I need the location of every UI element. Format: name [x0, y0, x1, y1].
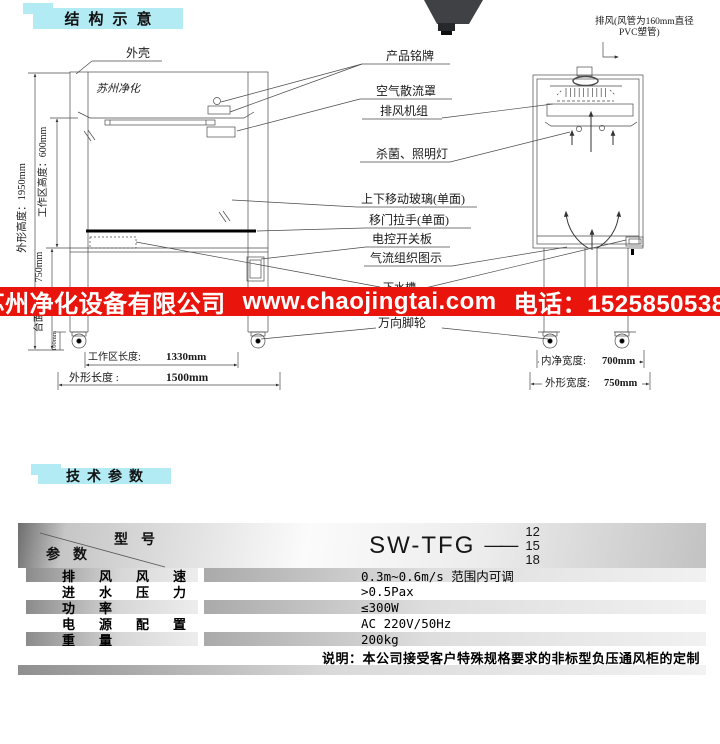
header-corner-cell: 型号 参数: [18, 523, 203, 568]
model-size: 15: [525, 539, 539, 553]
overall-length-value: 1500mm: [166, 372, 209, 384]
base-height-label: 100mm: [51, 331, 58, 351]
table-row: 电源配置 AC 220V/50Hz: [18, 616, 706, 630]
brand-mark: 苏州净化: [96, 82, 142, 95]
airflow-diagram-label: 气流组织图示: [370, 250, 442, 265]
overall-height-label: 外形高度：1950mm: [15, 163, 28, 253]
company-name: 苏州净化设备有限公司: [0, 284, 226, 319]
row-value: 0.3m~0.6m/s 范围内可调: [204, 566, 514, 585]
note-text: 说明：本公司接受客户特殊规格要求的非标型负压通风柜的定制: [322, 651, 700, 666]
table-note: 说明：本公司接受客户特殊规格要求的非标型负压通风柜的定制: [18, 648, 706, 664]
specs-section-title: 技术参数: [59, 466, 150, 486]
model-size: 18: [525, 553, 539, 567]
switch-panel-label: 电控开关板: [372, 232, 432, 246]
shell-label: 外壳: [126, 46, 150, 60]
control-panel: [247, 257, 264, 281]
row-value: >0.5Pax: [204, 584, 414, 599]
inner-width-value: 700mm: [602, 356, 635, 367]
overall-length-label: 外形长度 :: [69, 370, 119, 384]
work-area-length-label: 工作区长度:: [88, 350, 141, 363]
row-value: 200kg: [204, 632, 399, 647]
model-size: 12: [525, 525, 539, 539]
exhaust-note-line1: 排风(风管为160mm直径: [595, 15, 694, 27]
table-row: 功率 ≤300W: [18, 600, 706, 614]
table-row: 重量 200kg: [18, 632, 706, 646]
diffuser-label: 空气散流罩: [376, 83, 436, 98]
uv-lamp-label: 杀菌、照明灯: [376, 146, 448, 161]
model-cell: SW-TFG —— 12 15 18: [203, 523, 706, 568]
website-url: www.chaojingtai.com: [243, 288, 497, 316]
phone-number: 电话：15258505380: [514, 284, 720, 319]
param-header-label: 参数: [46, 544, 100, 564]
casters-label: 万向脚轮: [378, 315, 426, 330]
exhaust-fan-unit-label: 排风机组: [380, 104, 428, 118]
structure-diagram: 苏州净化: [0, 0, 720, 430]
work-area-length-value: 1330mm: [166, 351, 206, 363]
spec-table-header: 型号 参数 SW-TFG —— 12 15 18: [18, 523, 706, 568]
model-value: SW-TFG: [369, 532, 475, 560]
front-casters: [72, 332, 265, 348]
nameplate-label: 产品铭牌: [386, 48, 434, 63]
airflow-arrows: [566, 112, 619, 250]
photo-fragment: [424, 0, 483, 35]
page: { "sections": { "structure_title": "结构示意…: [0, 0, 720, 744]
model-joiner: ——: [484, 535, 516, 556]
overall-width-label: 外形宽度:: [545, 376, 590, 389]
model-header-label: 型号: [114, 529, 168, 549]
part-labels: 外壳 产品铭牌 排风(风管为160mm直径 PVC塑管) 空气散流罩 排风机组 …: [126, 15, 694, 330]
sink-outline: [90, 237, 136, 248]
contact-banner: 苏州净化设备有限公司 www.chaojingtai.com 电话：152585…: [0, 287, 720, 316]
table-row: 进水压力 >0.5Pax: [18, 584, 706, 598]
sliding-glass-label: 上下移动玻璃(单面): [361, 192, 465, 206]
model-sizes: 12 15 18: [525, 525, 539, 567]
row-value: ≤300W: [204, 600, 399, 615]
table-row: 排风风速 0.3m~0.6m/s 范围内可调: [18, 568, 706, 582]
side-casters: [543, 332, 629, 348]
row-value: AC 220V/50Hz: [204, 616, 451, 631]
row-label: 重量: [26, 630, 136, 649]
fan-comb: [557, 88, 615, 97]
door-handle-label: 移门拉手(单面): [369, 212, 449, 227]
specs-section-badge: 技术参数: [0, 460, 200, 488]
exhaust-note-line2: PVC塑管): [619, 26, 660, 38]
inner-width-label: 内净宽度:: [541, 354, 586, 367]
work-area-height-label: 工作区高度：600mm: [36, 127, 49, 218]
spec-table: 型号 参数 SW-TFG —— 12 15 18 排风风速 0.3m~0.6m/…: [18, 523, 706, 675]
table-footer-band: [18, 665, 706, 675]
badge-bar: 技术参数: [38, 468, 171, 484]
overall-width-value: 750mm: [604, 378, 637, 389]
